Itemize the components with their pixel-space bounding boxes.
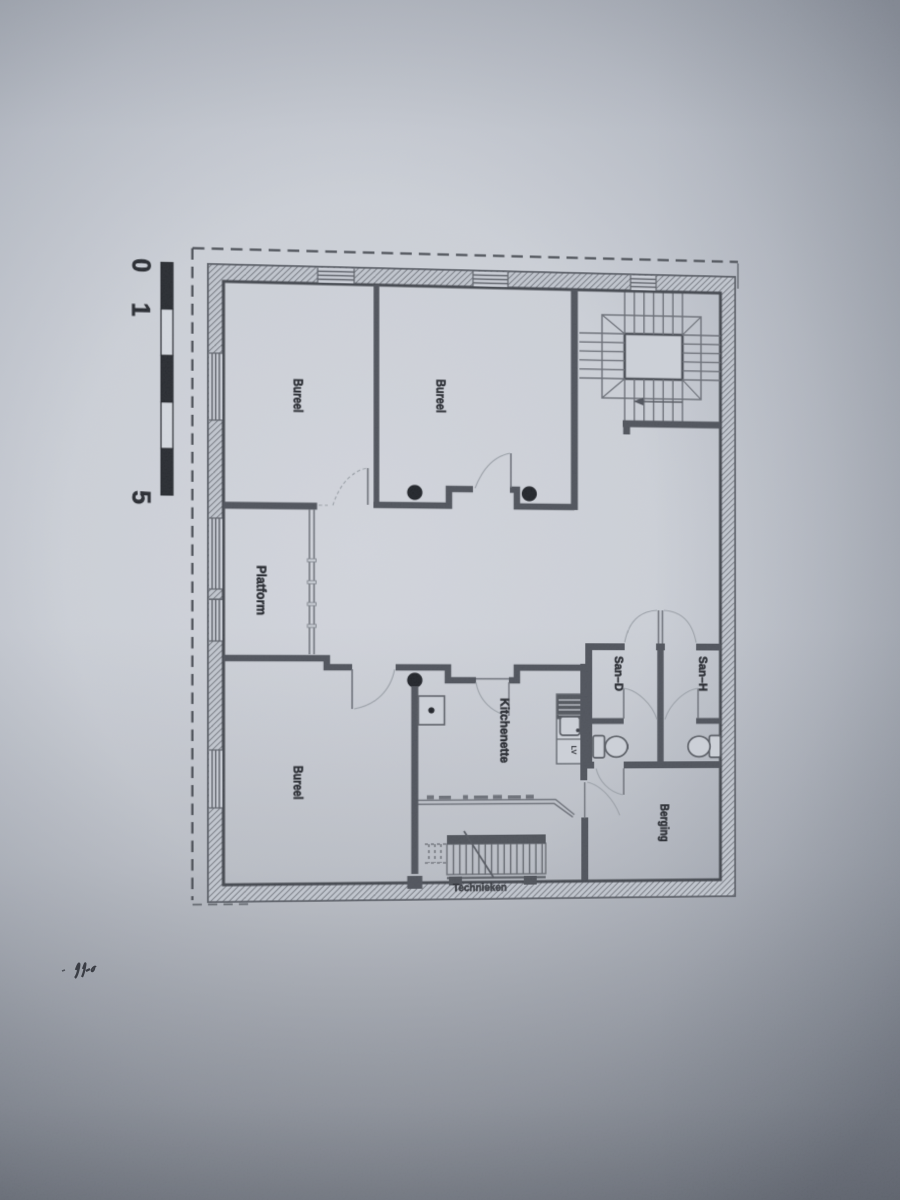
svg-text:Technieken: Technieken — [453, 882, 507, 894]
svg-text:Platform: Platform — [254, 565, 269, 615]
svg-text:Bureel: Bureel — [291, 766, 306, 800]
svg-text:0: 0 — [127, 258, 155, 273]
svg-text:Bureel: Bureel — [434, 379, 449, 413]
svg-text:Berging: Berging — [658, 804, 672, 842]
svg-text:San–H: San–H — [696, 656, 709, 691]
svg-text:Kitchenette: Kitchenette — [498, 698, 513, 763]
svg-text:Bureel: Bureel — [291, 379, 306, 413]
svg-text:San–D: San–D — [612, 656, 625, 691]
svg-text:1: 1 — [126, 302, 154, 317]
svg-text:5: 5 — [127, 490, 155, 504]
svg-text:LV: LV — [569, 746, 578, 756]
